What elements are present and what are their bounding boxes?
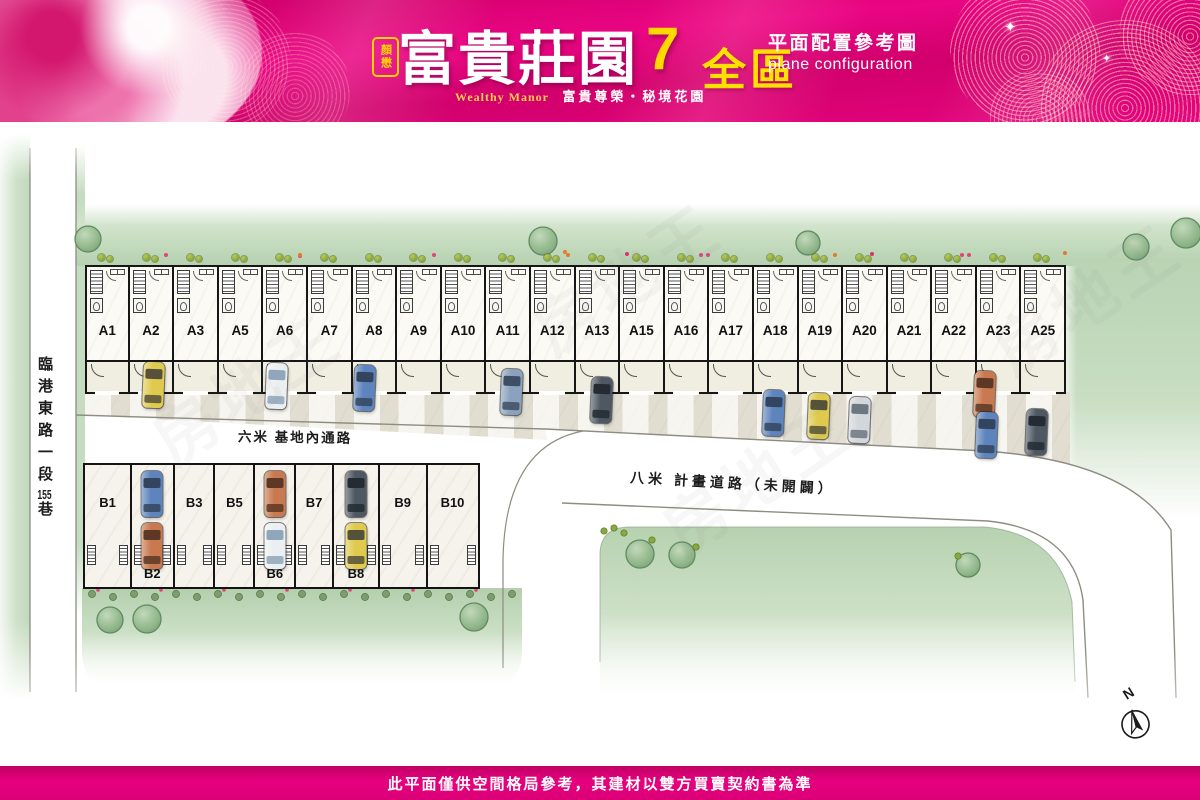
bush-icon [687, 256, 693, 262]
tree-icon [1123, 234, 1149, 260]
bush-icon [544, 254, 551, 261]
bathroom-icon [1024, 298, 1037, 313]
bush-icon [241, 256, 247, 262]
unit-floorplan: A3 [172, 265, 219, 362]
bush-icon [410, 254, 417, 261]
unit-a-cell: A9 [397, 252, 442, 394]
project-subtitle: Wealthy Manor 富貴尊榮・秘境花園 [455, 86, 706, 105]
front-yard [486, 252, 531, 265]
bush-icon [366, 254, 373, 261]
project-title: 富貴莊園 [398, 12, 638, 96]
bathroom-icon [534, 298, 547, 313]
bush-icon [464, 256, 470, 262]
door-arc-icon [951, 271, 961, 281]
flower-icon [566, 253, 570, 257]
bathroom-icon [90, 298, 103, 313]
configuration-caption-en: plane configuration [768, 54, 919, 75]
front-yard [397, 252, 442, 265]
bathroom-icon [891, 298, 904, 313]
bush-icon [598, 256, 604, 262]
bush-icon [776, 256, 782, 262]
unit-floorplan: A15 [618, 265, 665, 362]
unit-b-cell: B7 [294, 463, 334, 589]
tree-icon [626, 540, 654, 568]
stair-icon [133, 270, 146, 294]
unit-label: A20 [843, 323, 886, 338]
bush-icon [419, 256, 425, 262]
unit-garage-porch [930, 362, 977, 394]
car [500, 369, 523, 416]
door-arc-icon [773, 271, 783, 281]
unit-floorplan: A9 [395, 265, 442, 362]
unit-floorplan: A13 [574, 265, 621, 362]
car [975, 412, 998, 459]
stair-icon [846, 270, 859, 294]
car [264, 523, 285, 569]
unit-label: B9 [380, 495, 426, 510]
bush-icon [276, 254, 283, 261]
unit-a-cell: A5 [219, 252, 264, 394]
front-yard [1021, 252, 1066, 265]
tree-icon [133, 605, 161, 633]
stair-icon [415, 545, 424, 565]
unit-label: A1 [87, 323, 128, 338]
bush-icon [232, 254, 239, 261]
unit-label: A13 [576, 323, 619, 338]
door-arc-icon [372, 271, 382, 281]
unit-floorplan: A12 [529, 265, 576, 362]
unit-label: A17 [709, 323, 752, 338]
bush-icon [330, 256, 336, 262]
unit-garage-porch [797, 362, 844, 394]
unit-label: B5 [215, 495, 253, 510]
stair-icon [891, 270, 904, 294]
unit-garage-porch [440, 362, 487, 394]
unit-a-cell: A18 [754, 252, 799, 394]
bush-icon [508, 590, 515, 597]
bush-icon [321, 254, 328, 261]
bush-icon [955, 553, 961, 559]
stair-icon [802, 270, 815, 294]
door-arc-icon [1040, 271, 1050, 281]
unit-label: A21 [888, 323, 931, 338]
unit-label: B1 [85, 495, 130, 510]
stair-icon [935, 270, 948, 294]
front-yard [531, 252, 576, 265]
front-yard [85, 252, 130, 265]
bush-icon [152, 256, 158, 262]
front-yard [932, 252, 977, 265]
stair-icon [162, 545, 171, 565]
bathroom-icon [222, 298, 235, 313]
flower-icon [699, 253, 703, 257]
unit-a-cell: A16 [665, 252, 710, 394]
stair-icon [336, 545, 345, 565]
unit-label: A9 [397, 323, 440, 338]
bush-icon [990, 254, 997, 261]
b-row-units: B1B2B3B5B6B7B8B9B10 [83, 463, 480, 589]
bathroom-icon [668, 298, 681, 313]
bush-icon [143, 254, 150, 261]
stair-icon [298, 545, 307, 565]
bush-icon [151, 593, 158, 600]
unit-label: A23 [977, 323, 1020, 338]
tree-icon [669, 542, 695, 568]
bush-icon [821, 256, 827, 262]
unit-label: A16 [665, 323, 708, 338]
stair-icon [489, 270, 502, 294]
unit-label: A15 [620, 323, 663, 338]
bathroom-icon [846, 298, 859, 313]
bush-icon [187, 254, 194, 261]
unit-a-cell: A3 [174, 252, 219, 394]
unit-label: A6 [263, 323, 306, 338]
bathroom-icon [177, 298, 190, 313]
front-yard [977, 252, 1022, 265]
unit-label: B3 [175, 495, 214, 510]
unit-floorplan: A11 [484, 265, 531, 362]
bathroom-icon [579, 298, 592, 313]
compass-n-label: N [1120, 684, 1137, 703]
car [142, 523, 163, 569]
door-arc-icon [106, 271, 116, 281]
bathroom-icon [712, 298, 725, 313]
sparkle-icon: ✦ [1004, 18, 1017, 36]
door-arc-icon [684, 271, 694, 281]
door-arc-icon [505, 271, 515, 281]
unit-label: B10 [428, 495, 478, 510]
unit-garage-porch [529, 362, 576, 394]
unit-a-cell: A25 [1021, 252, 1066, 394]
unit-floorplan: A16 [663, 265, 710, 362]
bathroom-icon [935, 298, 948, 313]
unit-a-cell: A1 [85, 252, 130, 394]
unit-floorplan: A18 [752, 265, 799, 362]
unit-garage-porch [85, 362, 130, 394]
front-yard [263, 252, 308, 265]
bathroom-icon [400, 298, 413, 313]
bathroom-icon [311, 298, 324, 313]
unit-floorplan: A19 [797, 265, 844, 362]
stair-icon [222, 270, 235, 294]
bush-icon [1034, 254, 1041, 261]
flower-icon [298, 253, 302, 257]
unit-garage-porch [663, 362, 710, 394]
bush-icon [298, 590, 305, 597]
unit-label: A12 [531, 323, 574, 338]
door-arc-icon [193, 271, 203, 281]
bush-icon [633, 254, 640, 261]
tree-icon [1171, 218, 1200, 248]
bush-icon [319, 593, 326, 600]
car [345, 523, 366, 569]
stair-icon [90, 270, 103, 294]
unit-a-cell: A19 [799, 252, 844, 394]
brand-en: Wealthy Manor [455, 90, 549, 104]
door-arc-icon [461, 271, 471, 281]
west-street-number: 155 [37, 488, 52, 501]
unit-garage-porch [395, 362, 442, 394]
inner-road-label: 六米 基地內通路 [238, 425, 353, 447]
bathroom-icon [757, 298, 770, 313]
bush-icon [621, 530, 627, 536]
unit-label: A2 [130, 323, 173, 338]
unit-label: A8 [353, 323, 396, 338]
unit-floorplan: A23 [975, 265, 1022, 362]
front-yard [665, 252, 710, 265]
stair-icon [311, 270, 324, 294]
car [345, 471, 366, 517]
stair-icon [980, 270, 993, 294]
bush-icon [601, 528, 607, 534]
tagline: 富貴尊榮・秘境花園 [562, 89, 706, 104]
unit-floorplan: A7 [306, 265, 353, 362]
front-yard [308, 252, 353, 265]
bush-icon [553, 256, 559, 262]
unit-b-cell: B8 [332, 463, 380, 589]
unit-floorplan: A20 [841, 265, 888, 362]
door-arc-icon [639, 271, 649, 281]
front-yard [576, 252, 621, 265]
front-yard [888, 252, 933, 265]
stair-icon [119, 545, 128, 565]
front-yard [219, 252, 264, 265]
configuration-caption: 平面配置參考圖 plane configuration [768, 33, 919, 75]
bush-icon [235, 593, 242, 600]
stair-icon [445, 270, 458, 294]
stair-icon [430, 545, 439, 565]
car [1025, 409, 1048, 456]
car [265, 363, 288, 410]
stair-icon [203, 545, 212, 565]
door-arc-icon [996, 271, 1006, 281]
bush-icon [455, 254, 462, 261]
stair-icon [400, 270, 413, 294]
stair-icon [217, 545, 226, 565]
car [264, 471, 285, 517]
stair-icon [467, 545, 476, 565]
bush-icon [487, 593, 494, 600]
bush-icon [693, 544, 699, 550]
bathroom-icon [266, 298, 279, 313]
stair-icon [321, 545, 330, 565]
bathroom-icon [356, 298, 369, 313]
bush-icon [1043, 256, 1049, 262]
bush-icon [611, 525, 617, 531]
bush-icon [277, 593, 284, 600]
unit-b-cell: B6 [253, 463, 296, 589]
west-street-suffix: 巷 [36, 501, 53, 523]
stair-icon [177, 545, 186, 565]
unit-garage-porch [707, 362, 754, 394]
door-arc-icon [327, 271, 337, 281]
bush-icon [999, 256, 1005, 262]
flower-icon [164, 253, 168, 257]
unit-garage-porch [306, 362, 353, 394]
front-yard [620, 252, 665, 265]
bush-icon [910, 256, 916, 262]
unit-floorplan: A10 [440, 265, 487, 362]
bathroom-icon [489, 298, 502, 313]
bush-icon [865, 256, 871, 262]
stair-icon [623, 270, 636, 294]
unit-label: A5 [219, 323, 262, 338]
car [973, 371, 996, 418]
tree-icon [460, 603, 488, 631]
flower-icon [833, 253, 837, 257]
unit-label: B7 [296, 495, 332, 510]
disclaimer-text: 此平面僅供空間格局參考，其建材以雙方買賣契約書為準 [387, 773, 812, 794]
bush-icon [424, 590, 431, 597]
unit-label: A11 [486, 323, 529, 338]
header-banner: ✦ ✦ 顏懋 富貴莊園 7 Wealthy Manor 富貴尊榮・秘境花園 全區… [0, 0, 1200, 122]
stair-icon [382, 545, 391, 565]
unit-label: A25 [1021, 323, 1064, 338]
stair-icon [242, 545, 251, 565]
unit-garage-porch [886, 362, 933, 394]
bush-icon [193, 593, 200, 600]
unit-a-cell: A13 [576, 252, 621, 394]
bush-icon [285, 256, 291, 262]
unit-floorplan: A1 [85, 265, 130, 362]
unit-label: A22 [932, 323, 975, 338]
bush-icon [678, 254, 685, 261]
bathroom-icon [133, 298, 146, 313]
unit-floorplan: A2 [128, 265, 175, 362]
car [807, 393, 830, 440]
door-arc-icon [728, 271, 738, 281]
stair-icon [757, 270, 770, 294]
unit-label: A18 [754, 323, 797, 338]
unit-floorplan: A5 [217, 265, 264, 362]
front-yard [130, 252, 175, 265]
unit-label: A3 [174, 323, 217, 338]
unit-b-cell: B5 [213, 463, 255, 589]
door-arc-icon [818, 271, 828, 281]
door-arc-icon [238, 271, 248, 281]
bush-icon [340, 590, 347, 597]
project-phase-number: 7 [646, 14, 679, 83]
unit-garage-porch [841, 362, 888, 394]
flower-icon [432, 253, 436, 257]
unit-b-cell: B10 [426, 463, 480, 589]
car [590, 377, 613, 424]
bush-icon [731, 256, 737, 262]
car [848, 397, 871, 444]
bush-icon [722, 254, 729, 261]
unit-a-cell: A20 [843, 252, 888, 394]
unit-label: A19 [799, 323, 842, 338]
car [142, 471, 163, 517]
bush-icon [856, 254, 863, 261]
bush-icon [901, 254, 908, 261]
bathroom-icon [980, 298, 993, 313]
bush-icon [98, 254, 105, 261]
a-row-units: A1A2A3A5A6A7A8A9A10A11A12A13A15A16A17A18… [85, 252, 1066, 394]
stair-icon [87, 545, 96, 565]
front-yard [353, 252, 398, 265]
door-arc-icon [595, 271, 605, 281]
unit-b-cell: B9 [378, 463, 428, 589]
unit-floorplan: A6 [261, 265, 308, 362]
bush-icon [214, 590, 221, 597]
bush-icon [382, 590, 389, 597]
car [142, 362, 165, 409]
stair-icon [367, 545, 376, 565]
door-arc-icon [907, 271, 917, 281]
unit-floorplan: A22 [930, 265, 977, 362]
unit-a-cell: A12 [531, 252, 576, 394]
unit-label: A7 [308, 323, 351, 338]
unit-garage-porch [172, 362, 219, 394]
bush-icon [172, 590, 179, 597]
bush-icon [88, 590, 95, 597]
unit-floorplan: A21 [886, 265, 933, 362]
car [353, 365, 376, 412]
bush-icon [375, 256, 381, 262]
door-arc-icon [149, 271, 159, 281]
front-yard [754, 252, 799, 265]
lawn-south [82, 588, 522, 692]
developer-seal: 顏懋 [372, 37, 399, 77]
tree-icon [529, 227, 557, 255]
unit-a-cell: A21 [888, 252, 933, 394]
bush-icon [642, 256, 648, 262]
unit-a-cell: A22 [932, 252, 977, 394]
stair-icon [534, 270, 547, 294]
flower-icon [967, 253, 971, 257]
bush-icon [589, 254, 596, 261]
bush-icon [445, 593, 452, 600]
stair-icon [1024, 270, 1037, 294]
unit-garage-porch [217, 362, 264, 394]
bush-icon [649, 537, 655, 543]
bush-icon [256, 590, 263, 597]
stair-icon [579, 270, 592, 294]
bush-icon [130, 590, 137, 597]
front-yard [174, 252, 219, 265]
stair-icon [712, 270, 725, 294]
bush-icon [107, 256, 113, 262]
front-yard [799, 252, 844, 265]
bush-icon [403, 593, 410, 600]
bush-icon [499, 254, 506, 261]
unit-garage-porch [1019, 362, 1066, 394]
unit-label: A10 [442, 323, 485, 338]
bathroom-icon [623, 298, 636, 313]
door-arc-icon [282, 271, 292, 281]
bush-icon [466, 590, 473, 597]
west-street-name: 臨港東路一段 [36, 356, 53, 488]
bush-icon [109, 593, 116, 600]
stair-icon [668, 270, 681, 294]
unit-b-cell: B3 [173, 463, 216, 589]
configuration-caption-zh: 平面配置參考圖 [768, 33, 919, 54]
stair-icon [177, 270, 190, 294]
unit-floorplan: A17 [707, 265, 754, 362]
site-plan-poster: A1A2A3A5A6A7A8A9A10A11A12A13A15A16A17A18… [0, 0, 1200, 800]
unit-floorplan: A8 [351, 265, 398, 362]
stair-icon [266, 270, 279, 294]
bathroom-icon [802, 298, 815, 313]
door-arc-icon [416, 271, 426, 281]
footer-disclaimer-bar: 此平面僅供空間格局參考，其建材以雙方買賣契約書為準 [0, 766, 1200, 800]
bush-icon [196, 256, 202, 262]
tree-icon [75, 226, 101, 252]
unit-floorplan: A25 [1019, 265, 1066, 362]
bush-icon [812, 254, 819, 261]
car [762, 390, 785, 437]
